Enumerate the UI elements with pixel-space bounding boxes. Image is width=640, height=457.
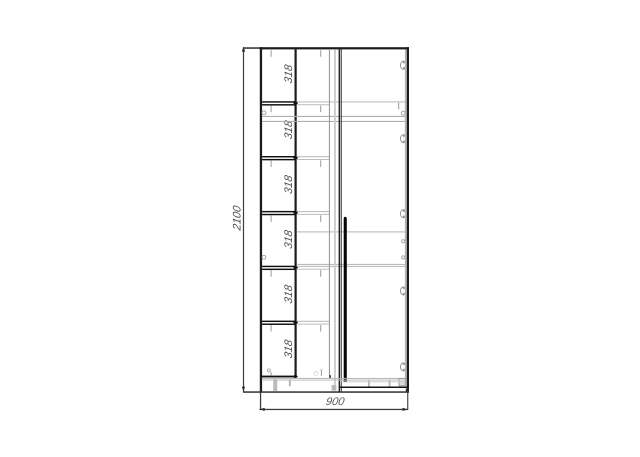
svg-text:318: 318: [283, 174, 295, 195]
svg-text:318: 318: [283, 338, 295, 359]
svg-text:2100: 2100: [231, 204, 243, 232]
svg-text:318: 318: [283, 283, 295, 304]
svg-text:900: 900: [325, 396, 346, 408]
svg-text:318: 318: [283, 63, 295, 84]
svg-text:318: 318: [283, 228, 295, 249]
